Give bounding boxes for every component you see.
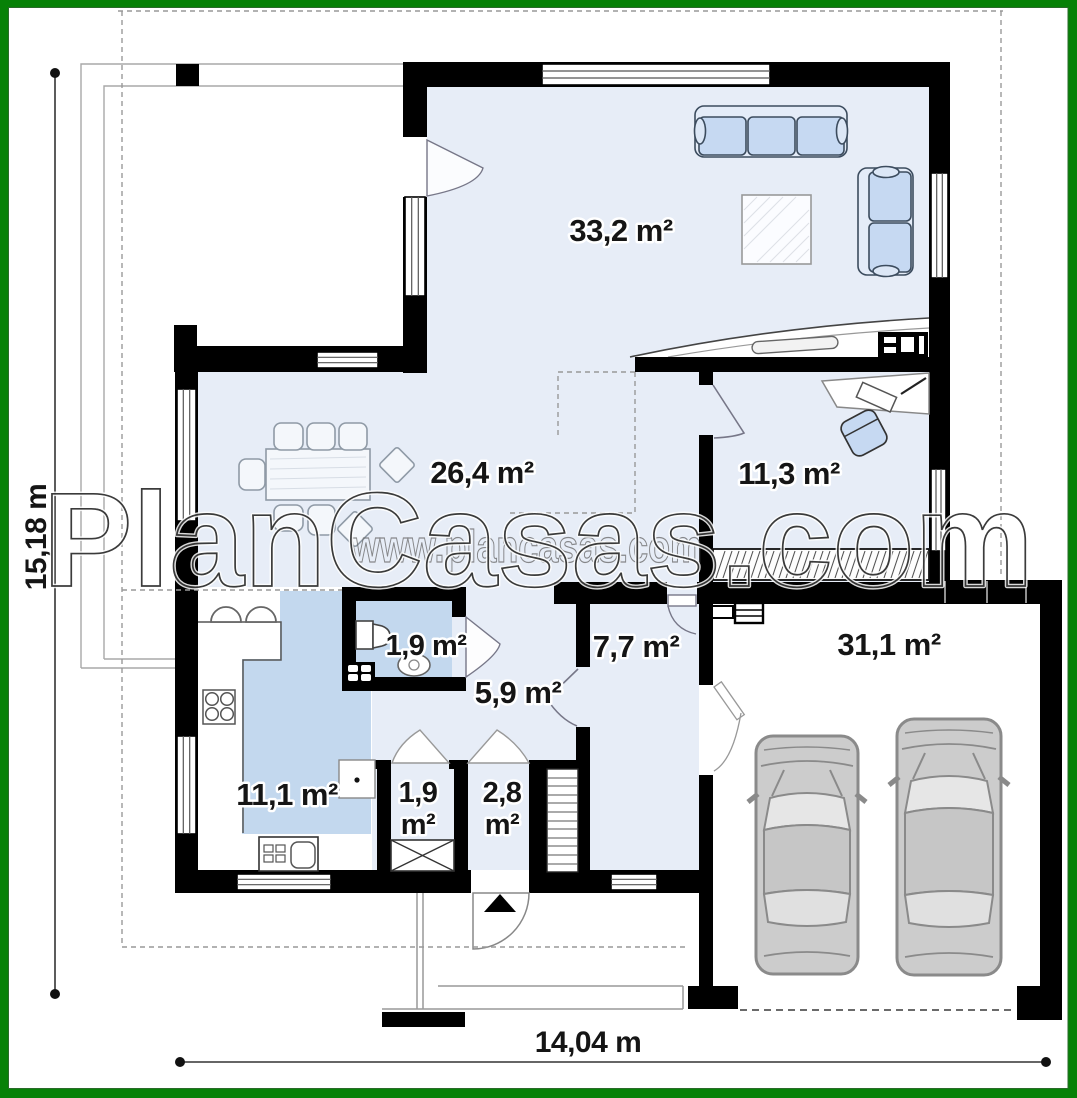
svg-text:14,04 m: 14,04 m bbox=[535, 1026, 642, 1059]
svg-text:7,7 m²: 7,7 m² bbox=[593, 629, 680, 664]
svg-text:11,1 m²: 11,1 m² bbox=[236, 777, 338, 812]
svg-text:m²: m² bbox=[401, 809, 436, 841]
svg-text:2,8: 2,8 bbox=[483, 777, 522, 809]
svg-text:33,2 m²: 33,2 m² bbox=[569, 213, 673, 248]
svg-text:31,1 m²: 31,1 m² bbox=[837, 627, 941, 662]
svg-text:5,9 m²: 5,9 m² bbox=[475, 675, 562, 710]
svg-text:PlanCasas.com: PlanCasas.com bbox=[43, 466, 1034, 615]
svg-text:m²: m² bbox=[485, 809, 520, 841]
svg-text:1,9: 1,9 bbox=[399, 777, 438, 809]
svg-text:1,9 m²: 1,9 m² bbox=[386, 630, 468, 662]
